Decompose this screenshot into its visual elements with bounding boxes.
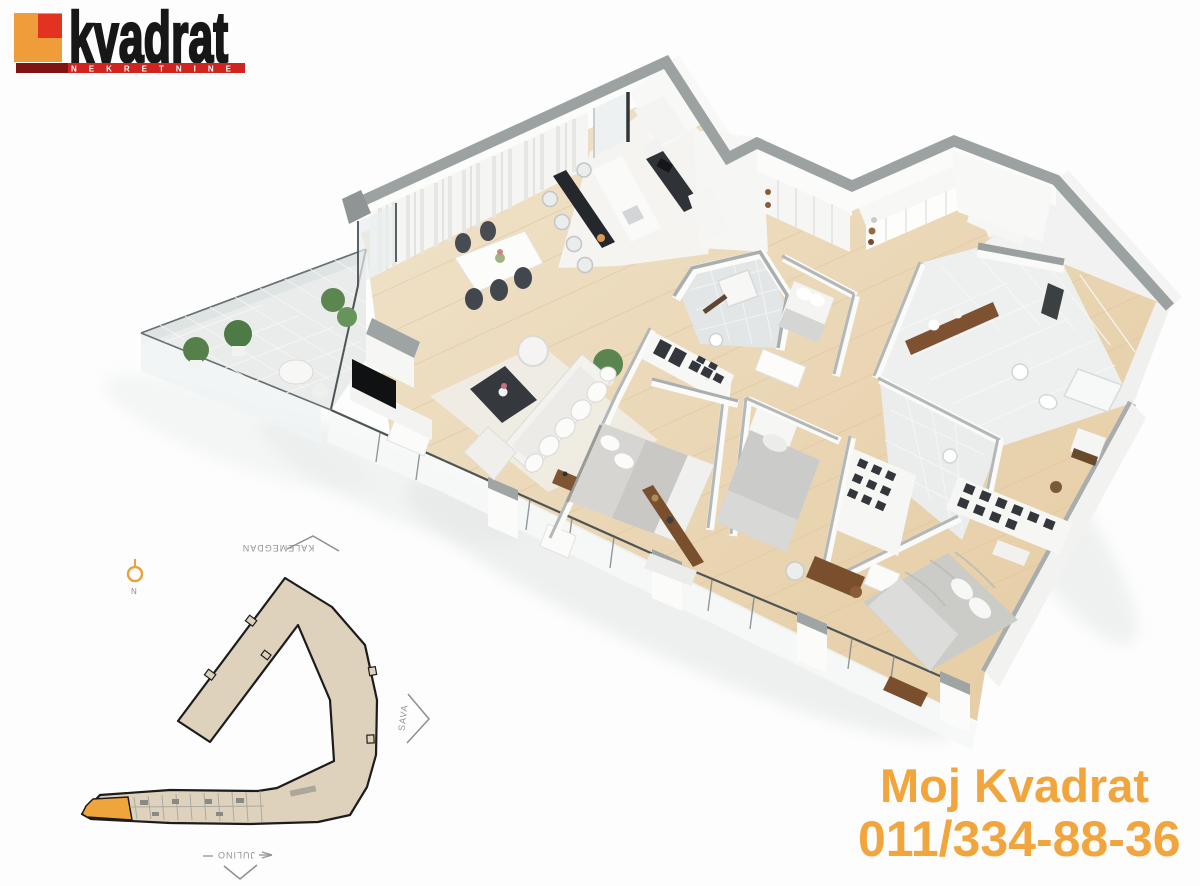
svg-text:NEKRETNINE: NEKRETNINE bbox=[71, 65, 243, 74]
svg-text:KALEMEGDAN: KALEMEGDAN bbox=[242, 543, 315, 553]
svg-text:011/334-88-36: 011/334-88-36 bbox=[858, 811, 1181, 867]
svg-text:Moj Kvadrat: Moj Kvadrat bbox=[880, 759, 1149, 812]
svg-text:JULINO: JULINO bbox=[217, 850, 255, 860]
svg-text:N: N bbox=[131, 587, 137, 596]
